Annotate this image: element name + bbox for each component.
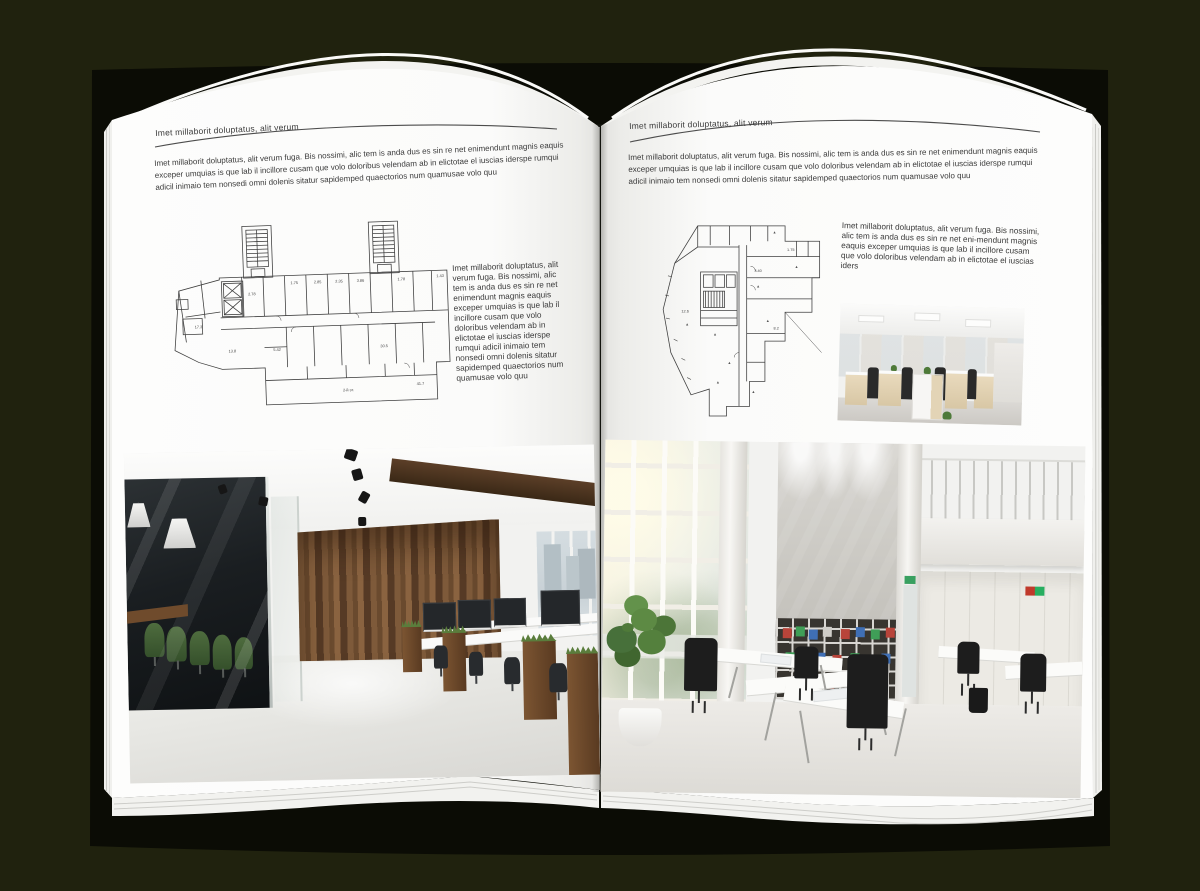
svg-text:2.35: 2.35 bbox=[335, 278, 343, 283]
page-edge bbox=[1092, 114, 1102, 798]
floor-plan-right-labels: 1.75 3.40 12.6 8.2 bbox=[681, 248, 794, 331]
mezzanine-railing bbox=[901, 444, 1085, 566]
svg-text:▲: ▲ bbox=[751, 390, 755, 394]
photo-office-wood-glass bbox=[124, 445, 600, 784]
svg-text:13.8: 13.8 bbox=[229, 348, 237, 353]
binder bbox=[840, 629, 849, 639]
monitor bbox=[493, 598, 526, 628]
monitor bbox=[423, 602, 456, 632]
office-chair bbox=[468, 651, 483, 676]
green-chair bbox=[235, 637, 254, 670]
svg-text:17.3: 17.3 bbox=[195, 324, 203, 329]
svg-text:30.5: 30.5 bbox=[380, 343, 388, 348]
magazine-mockup: Imet millaborit doluptatus, alit verum I… bbox=[0, 0, 1200, 891]
svg-text:▲: ▲ bbox=[756, 284, 760, 288]
floor-plan-right: ▲▲▲ ▲▲▲ ▲▲▲ 1.75 3.40 12.6 8.2 bbox=[643, 218, 835, 420]
svg-text:3.40: 3.40 bbox=[754, 269, 761, 273]
office-chair bbox=[433, 645, 448, 668]
floor bbox=[601, 700, 1082, 798]
plant bbox=[890, 365, 897, 372]
plant bbox=[942, 412, 951, 420]
wood-cabinet bbox=[974, 373, 993, 409]
cabinet-wall bbox=[919, 571, 1084, 707]
floor-plan-left-walls bbox=[171, 219, 452, 408]
corridor bbox=[992, 343, 1023, 405]
green-chair bbox=[189, 631, 209, 666]
green-chair bbox=[212, 635, 232, 670]
svg-text:5.42: 5.42 bbox=[273, 347, 281, 352]
binder bbox=[870, 629, 879, 639]
left-page-side-text: Imet millaborit doluptatus, alit verum f… bbox=[452, 259, 575, 383]
svg-text:▲: ▲ bbox=[773, 231, 777, 235]
office-chair bbox=[794, 646, 818, 678]
trash-bin bbox=[969, 688, 989, 713]
svg-text:▲: ▲ bbox=[727, 361, 731, 365]
track-light bbox=[358, 517, 366, 526]
svg-text:1.75: 1.75 bbox=[787, 248, 794, 252]
glass-partition bbox=[270, 496, 302, 701]
planter bbox=[567, 652, 600, 775]
svg-text:▲: ▲ bbox=[685, 323, 689, 327]
office-chair bbox=[957, 642, 980, 674]
floor-plan-left: 2.78 1.75 2.85 2.35 3.86 1.78 1.43 17.3 … bbox=[156, 214, 455, 420]
office-chair bbox=[504, 657, 520, 684]
svg-text:12.6: 12.6 bbox=[681, 309, 688, 313]
svg-text:1.78: 1.78 bbox=[397, 276, 405, 281]
svg-text:▲: ▲ bbox=[766, 319, 770, 323]
concrete-wall bbox=[776, 442, 904, 641]
svg-text:3.86: 3.86 bbox=[357, 278, 365, 283]
svg-text:▲: ▲ bbox=[716, 380, 720, 384]
green-chair bbox=[144, 622, 164, 657]
svg-text:▲: ▲ bbox=[795, 265, 799, 269]
storage-cabinet bbox=[911, 373, 944, 420]
exit-sign bbox=[904, 576, 915, 585]
svg-text:2.85: 2.85 bbox=[314, 279, 322, 284]
floor-plan-right-walls bbox=[663, 226, 821, 416]
office-chair bbox=[549, 663, 568, 693]
office-chair bbox=[901, 367, 913, 399]
svg-text:8.2: 8.2 bbox=[774, 327, 779, 331]
door bbox=[902, 585, 918, 698]
svg-text:1.75: 1.75 bbox=[290, 280, 298, 285]
office-chair bbox=[967, 369, 977, 400]
ceiling-light bbox=[965, 319, 991, 328]
right-page-side-text: Imet millaborit doluptatus, alit verum f… bbox=[840, 221, 1041, 277]
office-chair bbox=[867, 367, 879, 398]
binder bbox=[885, 628, 894, 638]
monitor bbox=[458, 600, 491, 630]
svg-text:1.43: 1.43 bbox=[436, 273, 444, 278]
binder bbox=[855, 627, 864, 637]
green-chair bbox=[167, 627, 187, 662]
binder bbox=[783, 628, 792, 638]
planter bbox=[402, 626, 422, 673]
city-view bbox=[544, 544, 562, 594]
svg-text:▲: ▲ bbox=[713, 332, 717, 336]
svg-text:2.78: 2.78 bbox=[248, 291, 256, 296]
binder bbox=[796, 626, 805, 636]
floor-plan-right-symbols: ▲▲▲ ▲▲▲ ▲▲▲ bbox=[685, 231, 798, 394]
wood-cabinet bbox=[845, 371, 868, 405]
binder bbox=[809, 629, 818, 639]
svg-text:41.7: 41.7 bbox=[417, 381, 425, 386]
right-page-intro: Imet millaborit doluptatus, alit verum f… bbox=[628, 145, 1053, 188]
svg-text:2-й эт.: 2-й эт. bbox=[343, 387, 354, 392]
office-chair bbox=[846, 654, 888, 728]
binder bbox=[823, 627, 832, 637]
ceiling-light bbox=[914, 313, 940, 322]
safety-signs bbox=[1026, 586, 1044, 595]
ceiling-light bbox=[859, 314, 885, 323]
wood-cabinet bbox=[944, 371, 967, 410]
office-chair bbox=[684, 638, 718, 691]
plant bbox=[923, 367, 931, 374]
photo-office-loft bbox=[601, 440, 1086, 799]
monitor bbox=[540, 590, 580, 627]
office-chair bbox=[1020, 653, 1046, 692]
page-edge bbox=[104, 120, 112, 798]
wood-cabinet bbox=[878, 370, 901, 406]
photo-office-open-desks bbox=[837, 303, 1024, 425]
